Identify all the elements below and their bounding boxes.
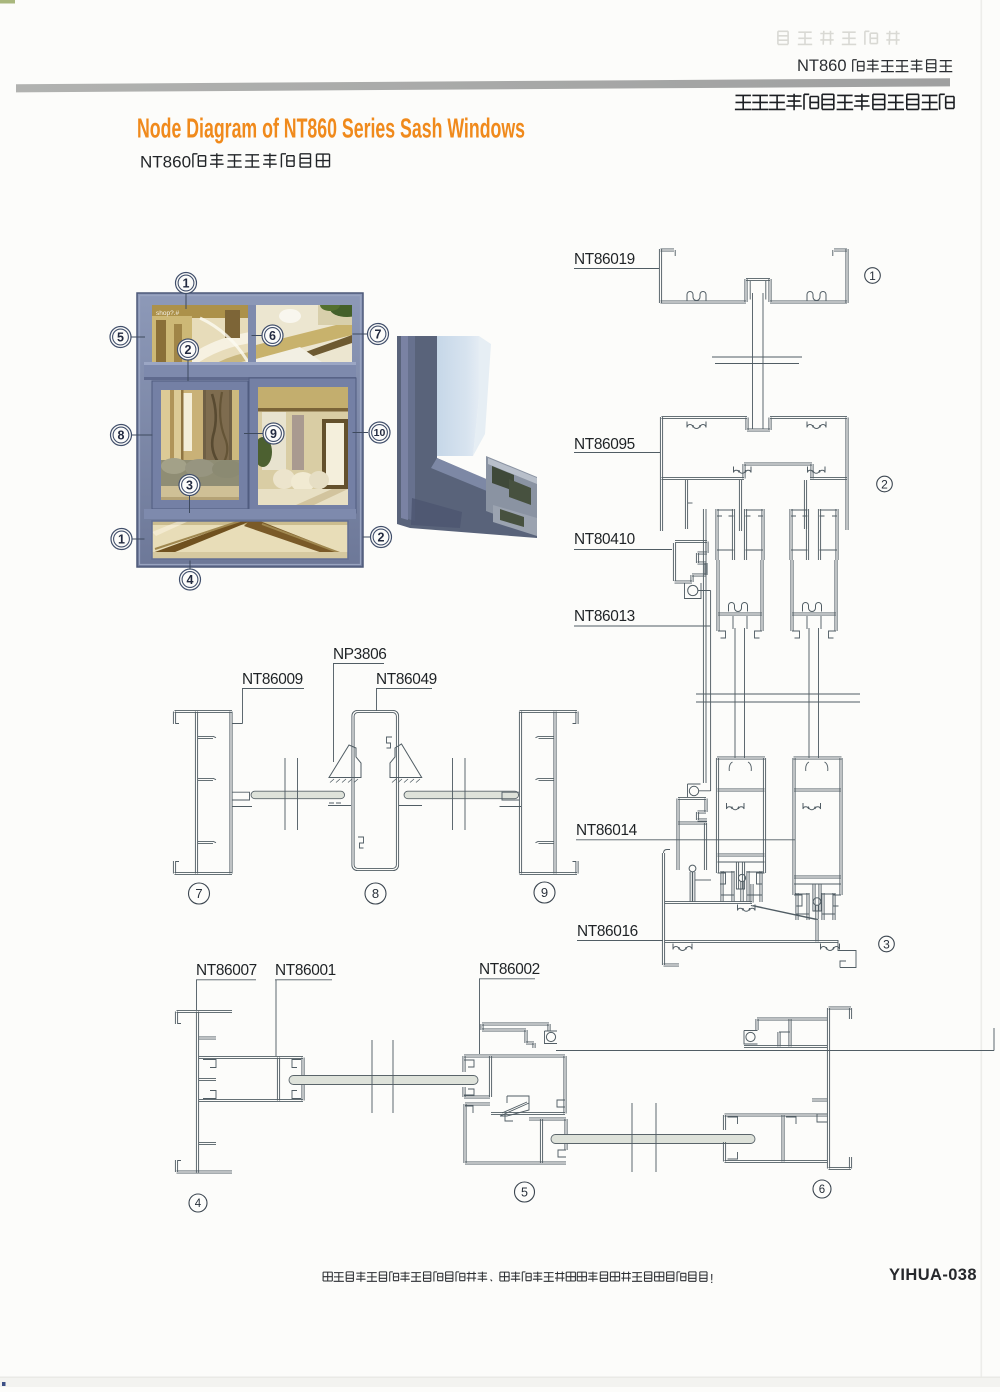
svg-text:8: 8: [372, 886, 379, 901]
svg-text:NT80410: NT80410: [574, 531, 635, 548]
svg-text:NT86019: NT86019: [574, 251, 635, 268]
svg-text:4: 4: [195, 1198, 202, 1210]
svg-text:NT86016: NT86016: [577, 923, 638, 940]
svg-text:9: 9: [270, 427, 277, 441]
svg-text:YIHUA-038: YIHUA-038: [889, 1266, 977, 1284]
svg-text:1: 1: [118, 532, 125, 546]
svg-text:NT86002: NT86002: [479, 961, 540, 978]
svg-text:NT86095: NT86095: [574, 436, 635, 453]
svg-text:2: 2: [185, 343, 192, 357]
svg-text:5: 5: [117, 330, 124, 344]
svg-text:7: 7: [195, 886, 202, 901]
svg-text:9: 9: [541, 885, 548, 900]
svg-text:6: 6: [269, 329, 276, 343]
svg-text:5: 5: [521, 1186, 528, 1200]
svg-text:shop?.#: shop?.#: [156, 310, 180, 317]
svg-text:NT86014: NT86014: [576, 822, 638, 839]
svg-text:10: 10: [374, 427, 386, 439]
svg-text:Node Diagram of NT860 Series S: Node Diagram of NT860 Series Sash Window…: [137, 113, 525, 144]
svg-text:2: 2: [378, 530, 385, 544]
svg-text:NP3806: NP3806: [333, 646, 387, 663]
svg-text:7: 7: [375, 327, 382, 341]
svg-text:2: 2: [881, 477, 888, 491]
svg-text:8: 8: [118, 428, 125, 442]
svg-text:NT86049: NT86049: [376, 671, 437, 688]
svg-text:3: 3: [186, 478, 193, 492]
svg-text:NT86009: NT86009: [242, 671, 303, 688]
svg-text:4: 4: [187, 573, 194, 587]
svg-text:3: 3: [883, 937, 890, 951]
svg-text:NT860: NT860: [140, 153, 191, 172]
svg-text:NT86013: NT86013: [574, 608, 635, 625]
svg-text:NT86007: NT86007: [196, 962, 257, 979]
svg-text:6: 6: [819, 1184, 825, 1196]
svg-text:!: !: [710, 1272, 713, 1286]
svg-text:1: 1: [183, 276, 190, 290]
svg-text:NT86001: NT86001: [275, 962, 336, 979]
svg-text:1: 1: [869, 269, 876, 283]
svg-text:NT860: NT860: [797, 57, 847, 75]
